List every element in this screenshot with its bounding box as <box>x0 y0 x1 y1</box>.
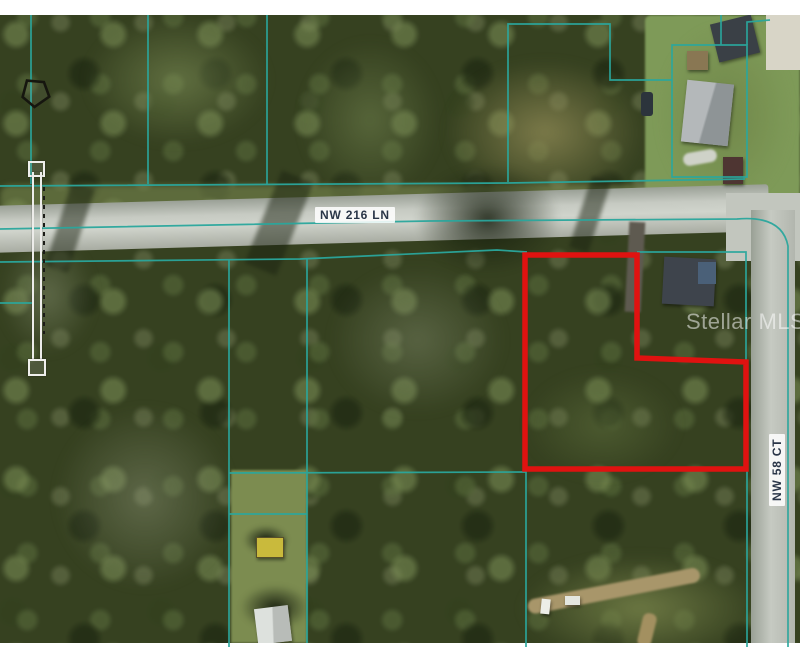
parcel-line <box>747 20 770 45</box>
parcel-line <box>672 45 747 177</box>
parcel-line <box>0 250 527 262</box>
north-arrow-icon <box>17 73 53 109</box>
parcel-overlay <box>0 0 800 647</box>
scale-bar-ticks <box>43 187 45 334</box>
stellar-mls-watermark: Stellar MLS <box>686 309 800 335</box>
parcel-lines <box>0 15 788 647</box>
parcel-line-road-north <box>0 179 745 186</box>
street-label-nw-216-ln: NW 216 LN <box>315 207 395 223</box>
street-label-nw-58-ct: NW 58 CT <box>769 434 785 506</box>
subject-property-boundary <box>525 255 746 469</box>
parcel-line <box>229 472 526 647</box>
aerial-parcel-map-screenshot: NW 216 LN NW 58 CT Stellar MLS <box>0 0 800 647</box>
scale-bar-bottom-box <box>28 359 46 376</box>
parcel-line-road-south <box>0 219 788 647</box>
scale-bar-line <box>32 172 42 360</box>
parcel-line <box>508 24 672 182</box>
